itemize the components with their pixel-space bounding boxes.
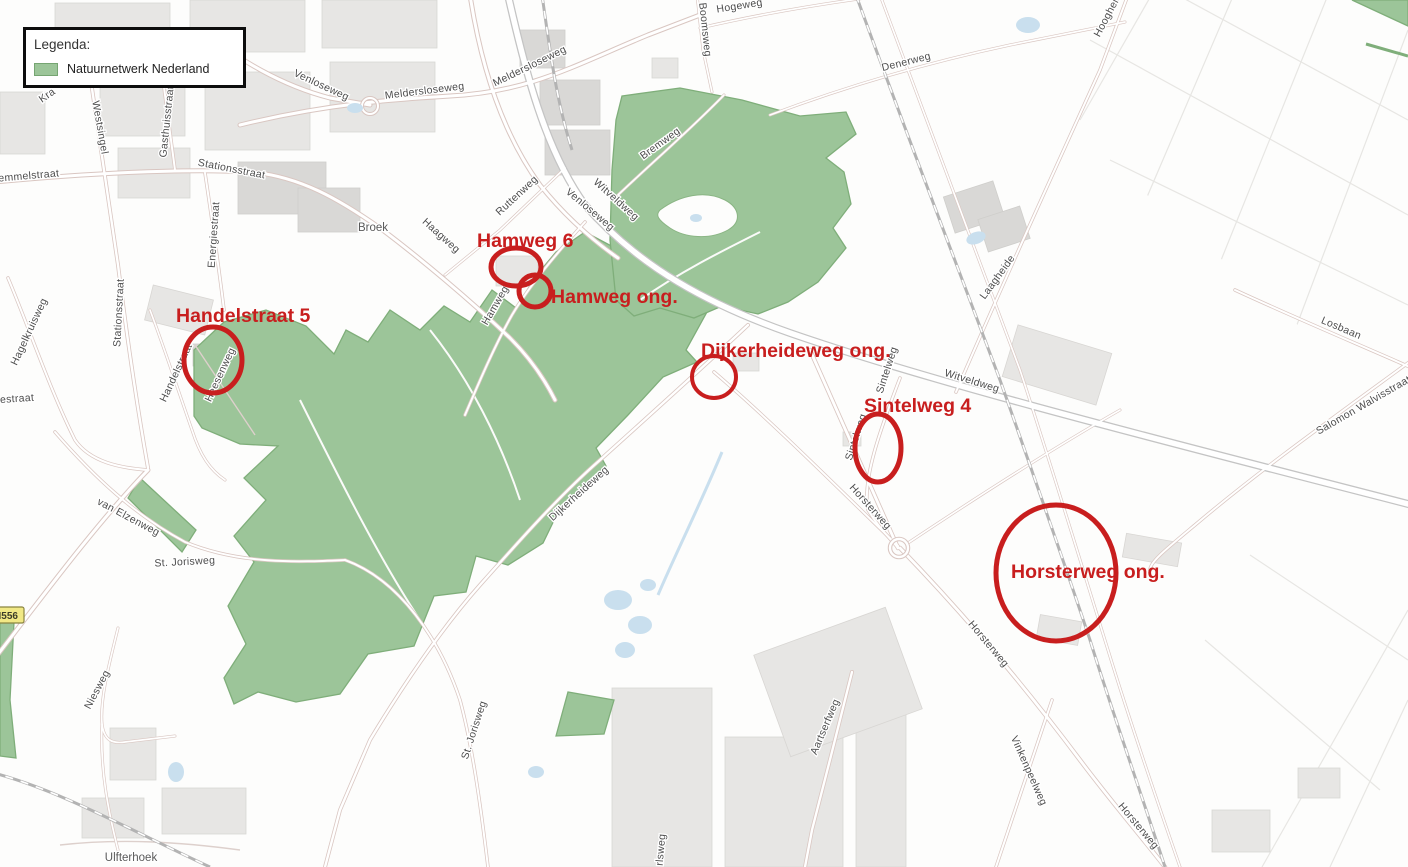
annotation-label-hamweg-6: Hamweg 6 bbox=[477, 230, 574, 252]
place-label: Broek bbox=[358, 222, 388, 234]
annotation-label-horsterweg-ong: Horsterweg ong. bbox=[1011, 561, 1165, 583]
place-label: Ulfterhoek bbox=[105, 852, 158, 864]
legend-item: Natuurnetwerk Nederland bbox=[34, 62, 233, 76]
road-badge: N556 bbox=[0, 607, 24, 623]
annotation-label-sintelweg-4: Sintelweg 4 bbox=[864, 395, 971, 417]
map-stage: N556 VenlosewegMelderslosewegMelderslose… bbox=[0, 0, 1408, 867]
annotation-label-hamweg-ong: Hamweg ong. bbox=[551, 286, 678, 308]
nature-swatch-icon bbox=[34, 63, 58, 76]
annotation-label-handelstraat-5: Handelstraat 5 bbox=[176, 305, 311, 327]
legend-item-label: Natuurnetwerk Nederland bbox=[67, 62, 209, 76]
road-badge-text: N556 bbox=[0, 611, 18, 622]
map-canvas[interactable]: N556 VenlosewegMelderslosewegMelderslose… bbox=[0, 0, 1408, 867]
annotation-label-dijkerheideweg-ong: Dijkerheideweg ong. bbox=[701, 340, 891, 362]
legend-title: Legenda: bbox=[34, 37, 233, 52]
legend-box: Legenda: Natuurnetwerk Nederland bbox=[23, 27, 246, 88]
